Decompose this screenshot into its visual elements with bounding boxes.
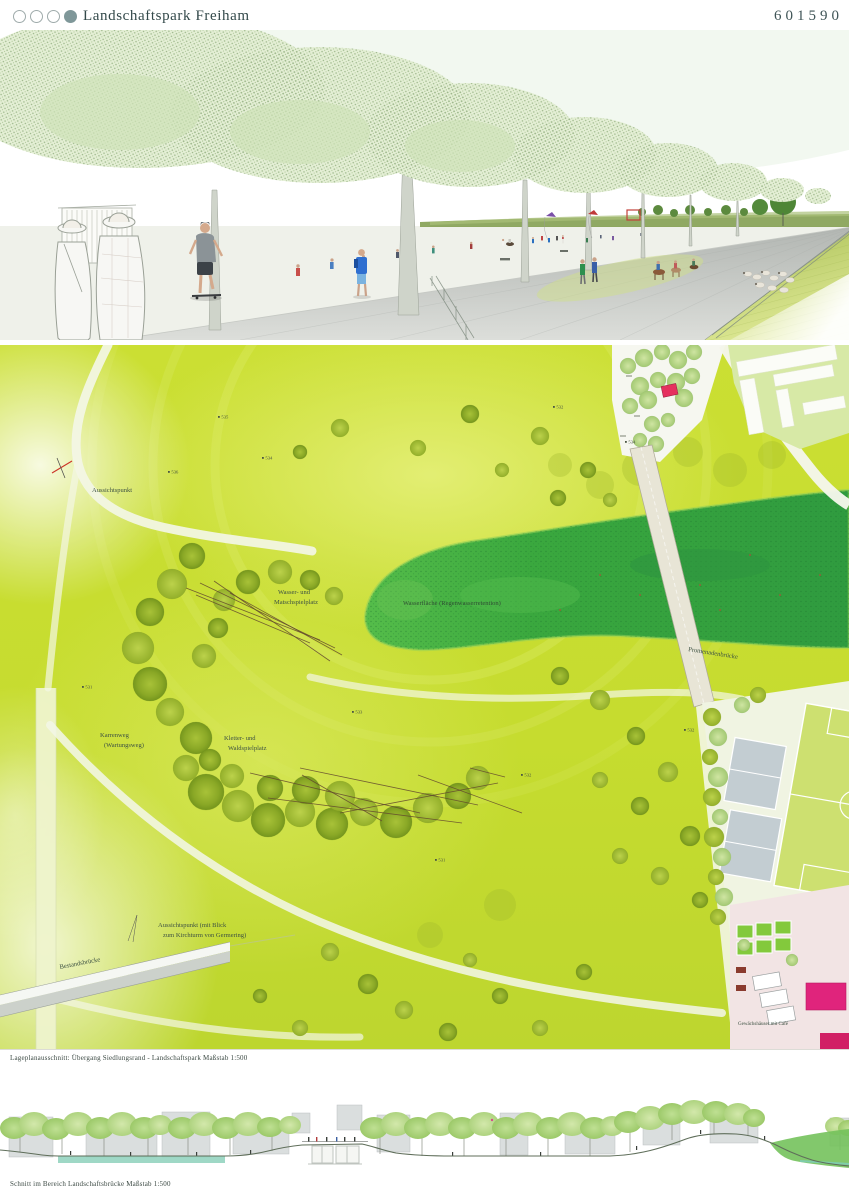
label-wasserspielplatz-1: Wasser- und <box>278 589 311 596</box>
spot-elevation: 534 <box>265 455 273 460</box>
section-drawing <box>0 1076 849 1176</box>
section-caption: Schnitt im Bereich Landschaftsbrücke Maß… <box>10 1180 171 1188</box>
plan-caption: Lageplanausschnitt: Übergang Siedlungsra… <box>10 1054 247 1062</box>
spot-elevation: 531 <box>438 857 446 862</box>
section-accent-flag <box>491 1119 493 1121</box>
poster-board: Landschaftspark Freiham 601590 <box>0 0 849 1200</box>
spot-elevation: 531 <box>85 684 93 689</box>
label-wartungsweg-2: (Wartungsweg) <box>104 742 144 749</box>
bridge-people <box>302 1137 368 1142</box>
entry-number: 601590 <box>774 8 843 25</box>
underpass-sketch <box>308 1146 362 1164</box>
plan-bottom-rule <box>0 1049 849 1050</box>
spot-elevation: 532 <box>556 404 564 409</box>
spot-elevation: 536 <box>171 469 179 474</box>
label-wasserspielplatz-2: Matschspielplatz <box>274 599 318 606</box>
category-dots <box>13 10 77 23</box>
spot-elevation: 533 <box>355 709 363 714</box>
garden-building-1 <box>806 983 846 1010</box>
label-aussicht-blick-1: Aussichtspunkt (mit Blick <box>158 922 227 929</box>
label-wasserflaeche: Wasserfläche (Regenwasserretention) <box>403 600 501 607</box>
site-plan: Aussichtspunkt Wasser- und Matschspielpl… <box>0 345 849 1050</box>
label-aussichtspunkt: Aussichtspunkt <box>92 487 132 494</box>
label-kletter-2: Waldspielplatz <box>228 745 267 752</box>
category-dot-4-icon <box>64 10 77 23</box>
label-kletter-1: Kletter- und <box>224 735 256 742</box>
perspective-rendering <box>0 30 849 340</box>
label-gewaechshaeuser: Gewächshäuser mit Café <box>738 1022 789 1027</box>
label-wartungsweg-1: Karrenweg <box>100 732 130 739</box>
label-aussicht-blick-2: zum Kirchturm von Germering) <box>163 932 246 939</box>
category-dot-3-icon <box>47 10 60 23</box>
spot-elevation: 535 <box>221 414 229 419</box>
spot-elevation: 532 <box>687 727 695 732</box>
garden-building-2 <box>820 1033 849 1049</box>
category-dot-1-icon <box>13 10 26 23</box>
spot-elevation: 534 <box>628 439 636 444</box>
category-dot-2-icon <box>30 10 43 23</box>
project-title: Landschaftspark Freiham <box>83 8 250 25</box>
spot-elevation: 532 <box>524 772 532 777</box>
header: Landschaftspark Freiham 601590 <box>0 0 849 32</box>
